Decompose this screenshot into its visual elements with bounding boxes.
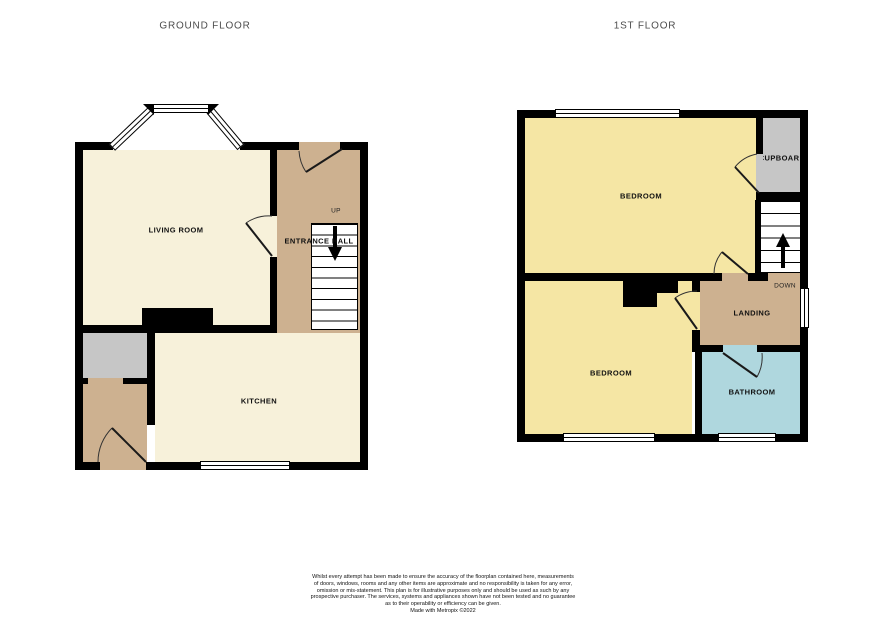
wall <box>755 200 761 273</box>
wall <box>680 110 808 118</box>
bedroom-front-window <box>555 109 680 118</box>
wall <box>517 434 563 442</box>
bathroom-label: BATHROOM <box>729 388 776 397</box>
bay-window-right <box>207 107 245 150</box>
bay-window-left <box>109 107 154 151</box>
wall <box>270 150 277 216</box>
porch <box>83 378 147 462</box>
wall <box>123 378 148 384</box>
wall <box>692 330 700 352</box>
wall <box>290 462 368 470</box>
bedroom-back-door-opening <box>692 292 700 330</box>
disclaimer-line: prospective purchaser. The services, sys… <box>0 594 886 601</box>
floorplan-canvas: GROUND FLOOR 1ST FLOOR <box>0 0 886 619</box>
bathroom-window <box>718 433 776 442</box>
wall <box>360 142 368 470</box>
bedroom-back-label: BEDROOM <box>590 369 632 378</box>
wall <box>147 333 155 425</box>
wall <box>75 325 270 333</box>
bedroom-back-window <box>563 433 655 442</box>
entrance-hall-label: ENTRANCE HALL <box>285 237 354 246</box>
wall <box>517 110 555 118</box>
wall <box>700 345 723 352</box>
cupboard-label: CUPBOARD <box>759 154 806 163</box>
disclaimer-line: Whilst every attempt has been made to en… <box>0 574 886 581</box>
bedroom-back <box>525 281 692 434</box>
front-door-opening <box>299 142 340 150</box>
wall <box>75 462 100 470</box>
chimney-breast <box>142 308 213 325</box>
wall <box>517 273 722 281</box>
landing-label: LANDING <box>734 309 771 318</box>
wall <box>692 281 700 292</box>
cupboard-door-opening <box>756 154 763 192</box>
wall <box>748 273 768 281</box>
chimney-breast <box>623 281 657 307</box>
disclaimer-line: as to their operability or efficiency ca… <box>0 601 886 608</box>
kitchen-window <box>200 461 290 470</box>
living-room <box>83 150 270 325</box>
wall <box>83 378 88 384</box>
kitchen-label: KITCHEN <box>241 397 277 406</box>
bathroom-door-opening <box>723 345 757 352</box>
wall <box>655 434 718 442</box>
stairs-up-label: UP <box>331 208 341 215</box>
wall <box>146 462 200 470</box>
first-floor-title: 1ST FLOOR <box>614 21 677 32</box>
stairs-down-label: DOWN <box>774 283 796 290</box>
wall <box>270 257 277 333</box>
staircase-first <box>756 200 806 273</box>
disclaimer-line: omission or mis-statement. This plan is … <box>0 588 886 595</box>
disclaimer-line: of doors, windows, rooms and any other i… <box>0 581 886 588</box>
store <box>83 333 147 378</box>
chimney-breast <box>657 281 678 293</box>
living-room-door-opening <box>270 216 277 257</box>
landing-window <box>800 288 809 328</box>
wall <box>756 118 763 154</box>
ground-floor-title: GROUND FLOOR <box>159 21 250 32</box>
wall <box>757 345 802 352</box>
wall <box>695 352 702 434</box>
bedroom-front-door-opening <box>722 273 748 281</box>
disclaimer: Whilst every attempt has been made to en… <box>0 574 886 615</box>
bay-window-top <box>150 104 212 113</box>
wall <box>240 142 299 150</box>
wall <box>776 434 808 442</box>
wall <box>75 142 83 470</box>
porch-door-opening <box>100 462 146 470</box>
wall <box>756 192 808 200</box>
bedroom-front-label: BEDROOM <box>620 192 662 201</box>
living-room-label: LIVING ROOM <box>149 226 204 235</box>
disclaimer-credit: Made with Metropix ©2022 <box>0 608 886 615</box>
